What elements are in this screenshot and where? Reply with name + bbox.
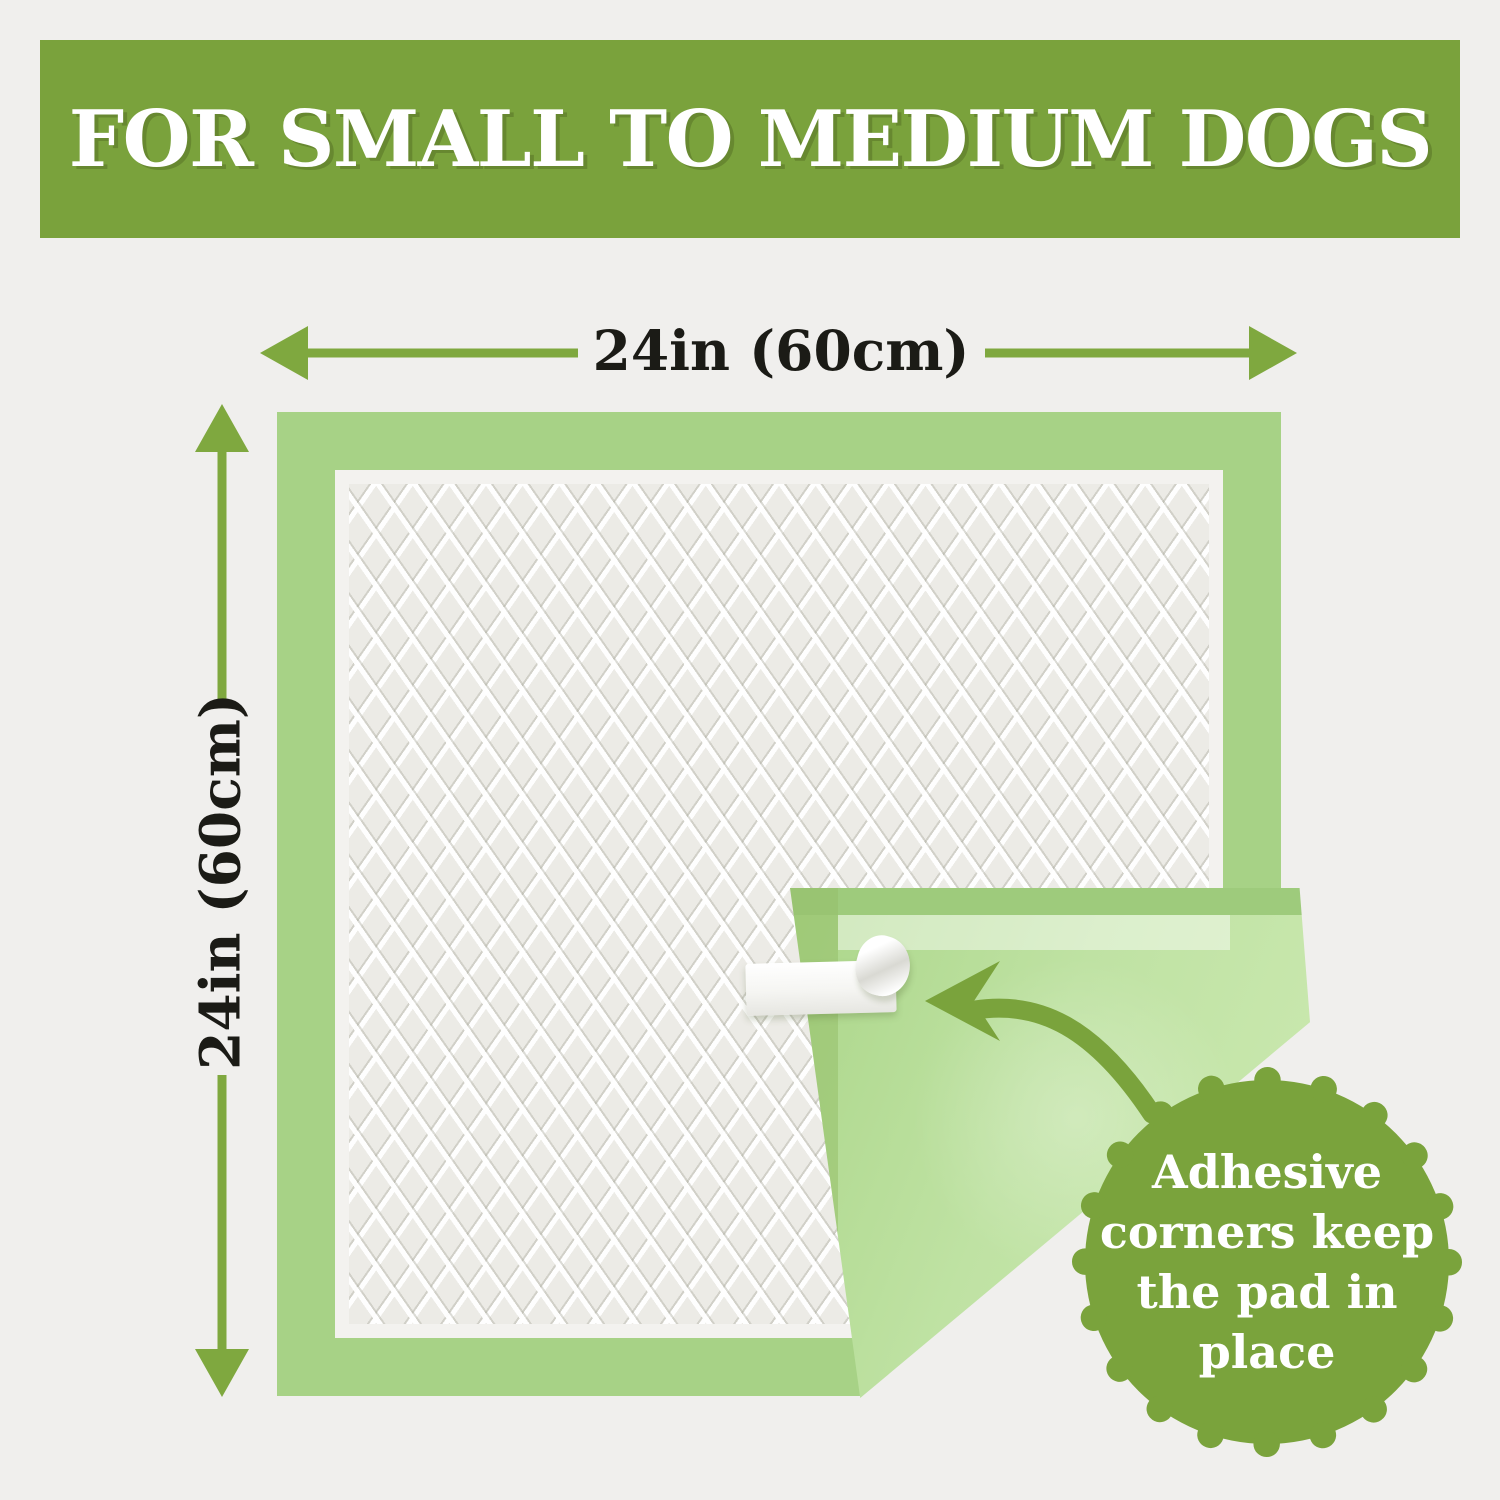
badge-line: place [1199, 1322, 1336, 1382]
width-dimension-label: 24in (60cm) [581, 318, 981, 383]
header-banner: FOR SMALL TO MEDIUM DOGS [40, 40, 1460, 238]
adhesive-feature-badge: Adhesive corners keep the pad in place [1062, 1057, 1472, 1467]
height-dimension-label: 24in (60cm) [188, 682, 253, 1082]
banner-title: FOR SMALL TO MEDIUM DOGS [69, 94, 1431, 185]
badge-line: Adhesive [1152, 1142, 1382, 1202]
product-infographic: FOR SMALL TO MEDIUM DOGS [0, 0, 1500, 1500]
badge-text: Adhesive corners keep the pad in place [1062, 1057, 1472, 1467]
badge-line: corners keep [1100, 1202, 1434, 1262]
badge-line: the pad in [1136, 1262, 1397, 1322]
